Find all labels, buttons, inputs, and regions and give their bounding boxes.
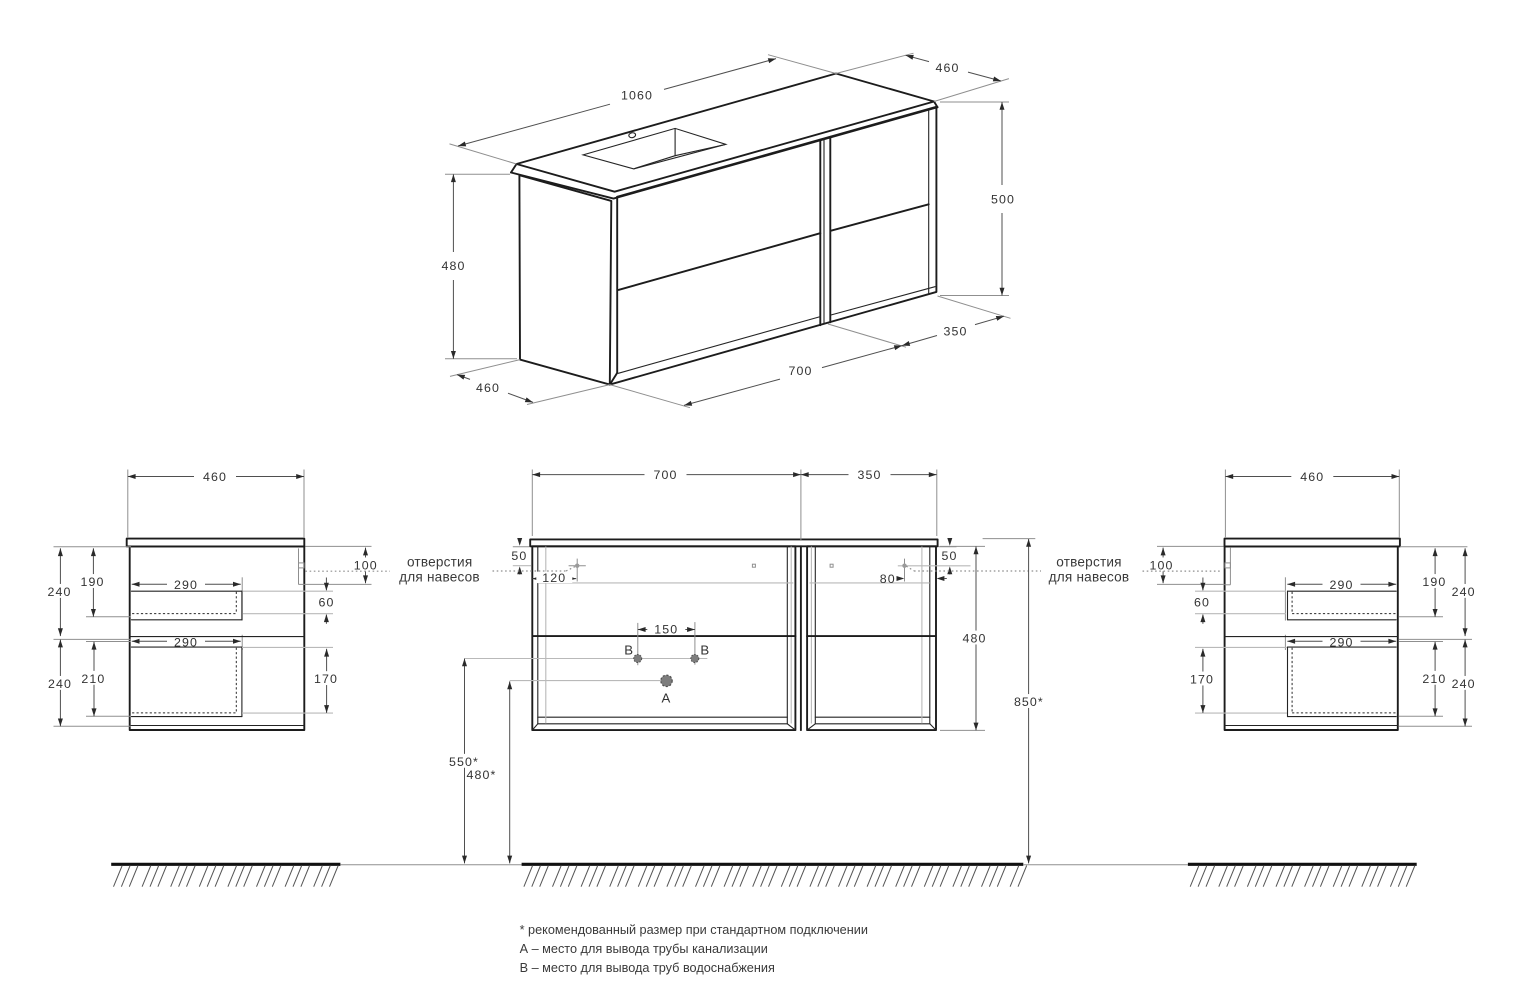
svg-text:460: 460 [476, 381, 500, 395]
svg-text:для навесов: для навесов [399, 569, 480, 584]
svg-text:240: 240 [1452, 585, 1476, 599]
svg-text:190: 190 [1422, 575, 1446, 589]
svg-text:170: 170 [314, 672, 338, 686]
svg-text:700: 700 [789, 364, 813, 378]
svg-text:80: 80 [880, 572, 896, 586]
svg-text:210: 210 [1422, 672, 1446, 686]
svg-text:850*: 850* [1014, 695, 1044, 709]
svg-text:100: 100 [1150, 558, 1174, 572]
svg-text:120: 120 [542, 571, 566, 585]
svg-text:550*: 550* [449, 755, 479, 769]
svg-text:А – место для вывода трубы кан: А – место для вывода трубы канализации [520, 942, 768, 956]
svg-text:210: 210 [81, 672, 105, 686]
svg-text:60: 60 [319, 595, 335, 609]
svg-text:отверстия: отверстия [1056, 554, 1121, 569]
svg-text:B: B [700, 642, 710, 657]
svg-text:1060: 1060 [621, 89, 653, 103]
svg-text:350: 350 [944, 324, 968, 338]
svg-text:460: 460 [1300, 470, 1324, 484]
svg-text:500: 500 [991, 192, 1015, 206]
svg-text:В – место для вывода труб водо: В – место для вывода труб водоснабжения [520, 961, 775, 975]
svg-text:отверстия: отверстия [407, 554, 472, 569]
svg-text:* рекомендованный размер при с: * рекомендованный размер при стандартном… [520, 923, 868, 937]
svg-text:60: 60 [1194, 595, 1210, 609]
svg-text:480: 480 [442, 259, 466, 273]
svg-text:460: 460 [203, 470, 227, 484]
svg-text:700: 700 [654, 468, 678, 482]
svg-text:480*: 480* [467, 768, 497, 782]
svg-text:B: B [624, 642, 634, 657]
svg-text:290: 290 [1330, 578, 1354, 592]
svg-text:240: 240 [48, 585, 72, 599]
svg-text:для навесов: для навесов [1049, 569, 1130, 584]
svg-text:480: 480 [963, 631, 987, 645]
svg-text:150: 150 [654, 622, 678, 636]
svg-text:50: 50 [511, 549, 527, 563]
svg-text:100: 100 [354, 558, 378, 572]
svg-text:290: 290 [174, 578, 198, 592]
svg-text:240: 240 [1452, 677, 1476, 691]
svg-text:240: 240 [48, 677, 72, 691]
svg-text:350: 350 [858, 468, 882, 482]
svg-text:190: 190 [81, 575, 105, 589]
svg-text:170: 170 [1190, 672, 1214, 686]
svg-text:50: 50 [942, 549, 958, 563]
svg-text:A: A [662, 691, 672, 706]
svg-text:460: 460 [936, 61, 960, 75]
